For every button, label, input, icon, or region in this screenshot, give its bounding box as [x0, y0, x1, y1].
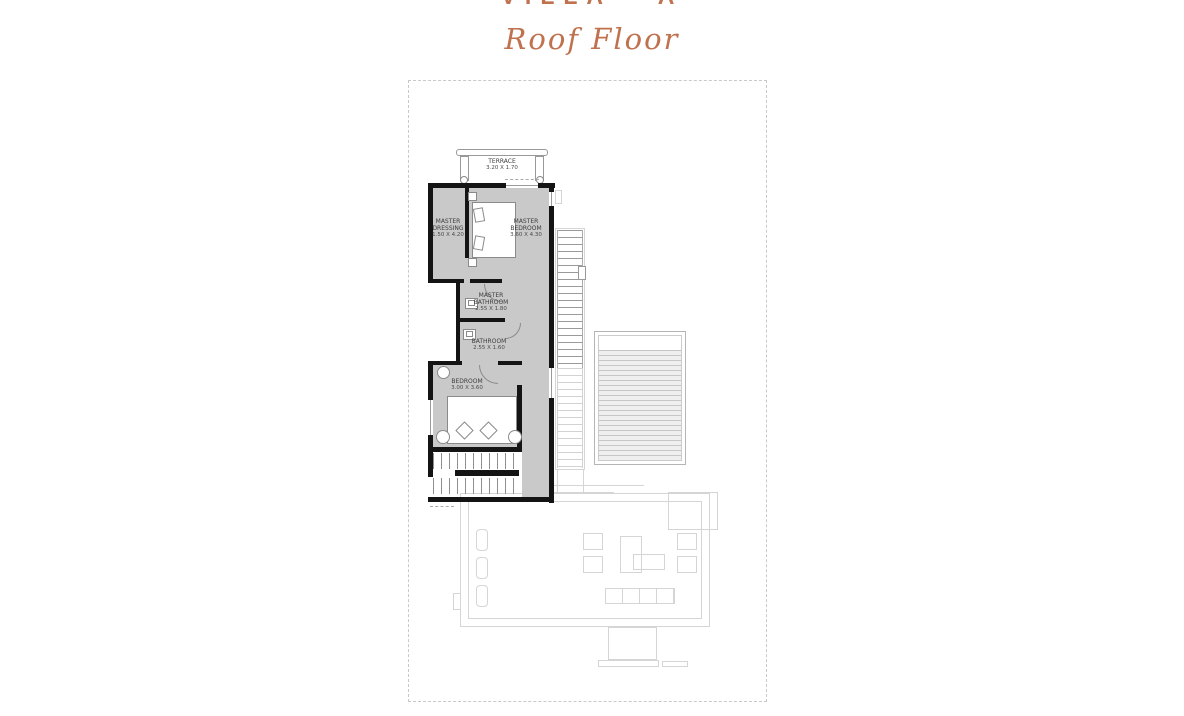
window: [549, 192, 554, 206]
wall-bath-divider: [456, 318, 505, 322]
window: [549, 368, 554, 398]
room-label-bathroom: BATHROOM 2.55 X 1.60: [468, 338, 510, 352]
stair-landing-marker: [578, 266, 586, 280]
ghost-sofa: [605, 588, 675, 604]
wall-bedroom-top-right: [498, 361, 522, 365]
wall-bedroom-bottom: [428, 447, 522, 452]
terrace-door-swing: [505, 179, 539, 180]
ghost-connector-line: [557, 470, 558, 493]
room-label-master-bathroom: MASTER BATHROOM 2.55 X 1.80: [461, 292, 521, 313]
wall-stair-bottom: [428, 497, 554, 502]
wall-right: [549, 183, 554, 503]
wall-stair-mid: [455, 470, 519, 476]
ghost-armchair: [677, 556, 697, 573]
ghost-entry-step: [598, 660, 659, 667]
ghost-lounger: [476, 585, 488, 607]
ghost-lounger: [476, 557, 488, 579]
room-label-master-dressing: MASTER DRESSING 1.50 X 4.20: [430, 218, 466, 239]
window: [506, 183, 538, 188]
ghost-coffee-table: [633, 554, 665, 570]
staircase-lower-flight: [433, 453, 519, 469]
ghost-connector-line: [583, 470, 584, 493]
wall-bedroom-top-left: [428, 361, 462, 365]
sink-basin: [466, 331, 473, 337]
floor-subtitle: Roof Floor: [0, 22, 1184, 56]
wall-bath-left: [456, 283, 460, 363]
terrace-rail: [456, 149, 548, 156]
staircase-upper-ghost: [557, 368, 583, 468]
pergola-louvers: [599, 350, 681, 460]
room-label-bedroom: BEDROOM 3.00 X 3.60: [446, 378, 488, 392]
side-table: [508, 430, 522, 444]
ghost-left-stub: [453, 593, 461, 610]
window: [428, 400, 433, 435]
ghost-armchair: [677, 533, 697, 550]
corridor-floor: [522, 447, 549, 499]
floor-plan-page: VILLA - A Roof Floor: [0, 0, 1184, 716]
page-title: VILLA - A: [0, 0, 1184, 10]
ghost-lounger: [476, 529, 488, 551]
wall-bracket: [555, 190, 562, 204]
side-table: [436, 430, 450, 444]
ghost-connector-line: [554, 485, 644, 486]
ghost-armchair: [583, 556, 603, 573]
nightstand: [468, 258, 477, 267]
wall-mbath-top: [470, 279, 502, 283]
bedroom-bed: [447, 396, 517, 444]
ghost-right-bay: [668, 492, 718, 530]
staircase-lower-flight: [433, 478, 519, 494]
ghost-entry-stem: [608, 627, 657, 660]
room-label-terrace: TERRACE 3.20 X 1.70: [474, 158, 530, 172]
staircase-upper: [557, 230, 583, 368]
room-label-master-bedroom: MASTER BEDROOM 3.60 X 4.30: [504, 218, 548, 239]
ghost-connector-line: [554, 492, 614, 493]
ghost-armchair: [583, 533, 603, 550]
stair-entry-dash: [430, 506, 454, 507]
ghost-entry-step: [662, 661, 688, 667]
nightstand: [468, 192, 477, 201]
